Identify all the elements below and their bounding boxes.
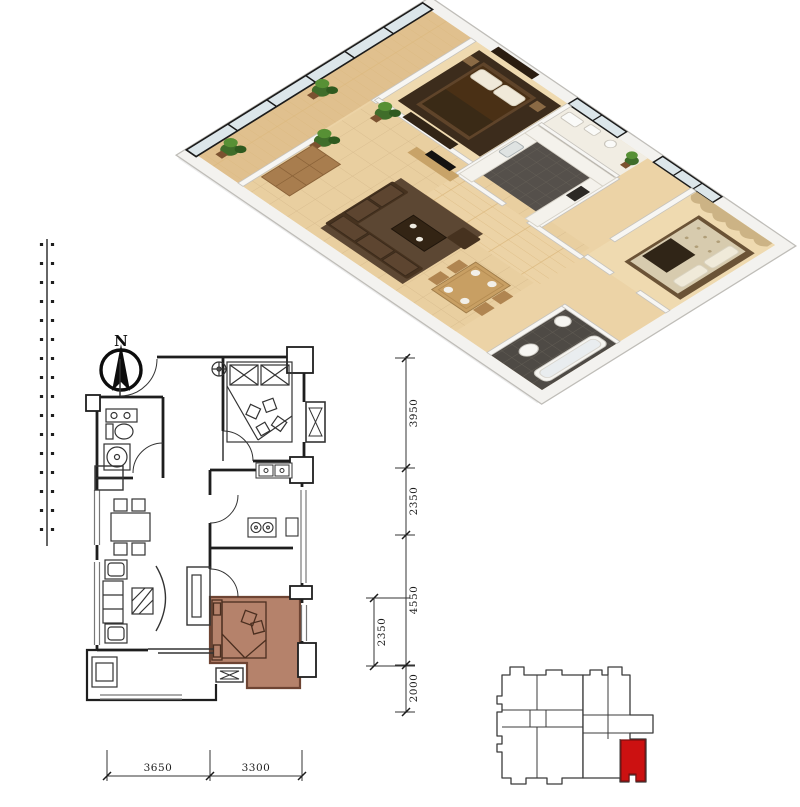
render-3d-apartment	[174, 0, 795, 405]
dimension-lines	[107, 356, 415, 781]
dim-right-2000: 2000	[408, 674, 420, 703]
listing-floorplan-image: N	[0, 0, 800, 807]
bay-window-symbol	[216, 668, 243, 682]
dimension-annotations: 3950 2350 4550 2000 2350 3650 3300	[103, 354, 420, 781]
dim-bottom-3300: 3300	[242, 762, 271, 774]
door-arcs	[120, 359, 253, 597]
keyplan-left-block	[497, 667, 583, 784]
compass: N	[101, 332, 141, 391]
dim-bottom-3650: 3650	[144, 762, 173, 774]
floorplan-scene: N	[0, 0, 800, 807]
boundary-fence-line	[42, 239, 53, 546]
living-room-plan-furniture	[103, 560, 210, 643]
dim-right-4550: 4550	[408, 586, 420, 615]
building-key-plan	[497, 667, 653, 784]
kitchen-stove	[248, 518, 298, 537]
dim-right-inner-2350: 2350	[376, 618, 388, 647]
kitchen-sink-counter	[256, 463, 292, 478]
sliding-door	[148, 649, 214, 653]
bathroom-fixtures	[104, 409, 137, 470]
north-arrow-icon	[101, 344, 141, 391]
dim-right-3950: 3950	[408, 399, 420, 428]
dim-right-2350: 2350	[408, 487, 420, 516]
ac-unit-symbol	[306, 402, 325, 442]
balcony-plan-item	[92, 657, 117, 687]
floor-plan-2d	[86, 347, 325, 700]
